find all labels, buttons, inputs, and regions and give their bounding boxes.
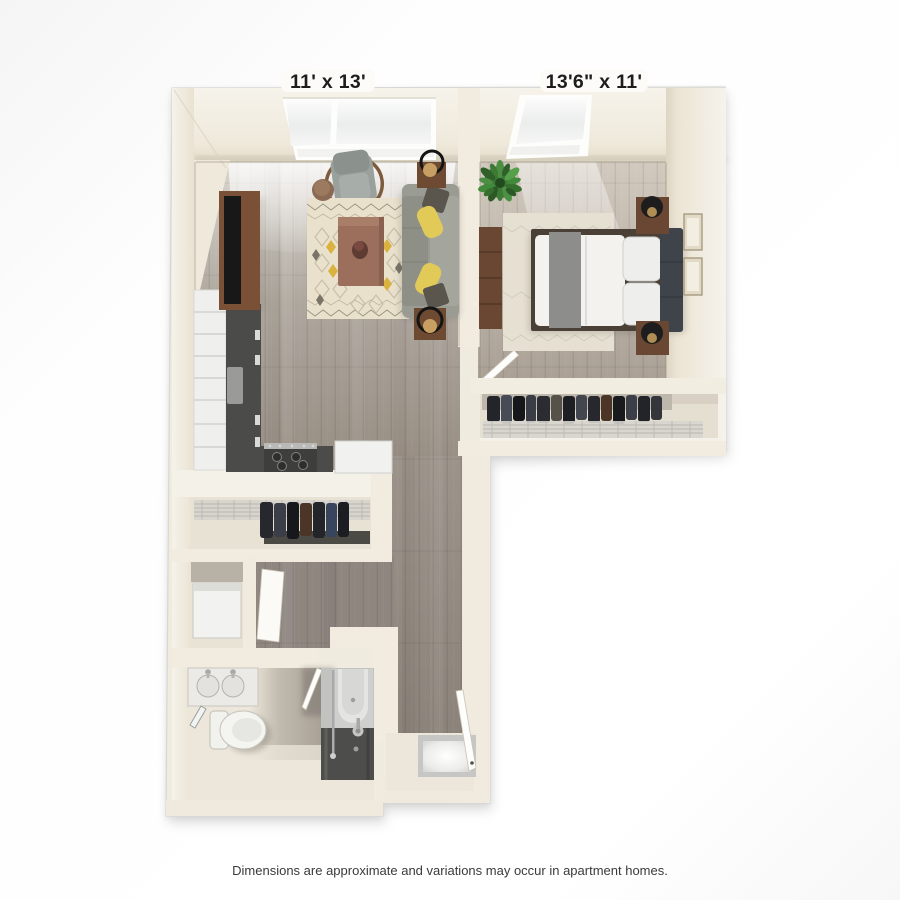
svg-text:13'6" x 11': 13'6" x 11' <box>546 71 643 93</box>
svg-text:Dimensions are approximate and: Dimensions are approximate and variation… <box>232 863 668 878</box>
svg-text:11' x 13': 11' x 13' <box>290 71 366 93</box>
